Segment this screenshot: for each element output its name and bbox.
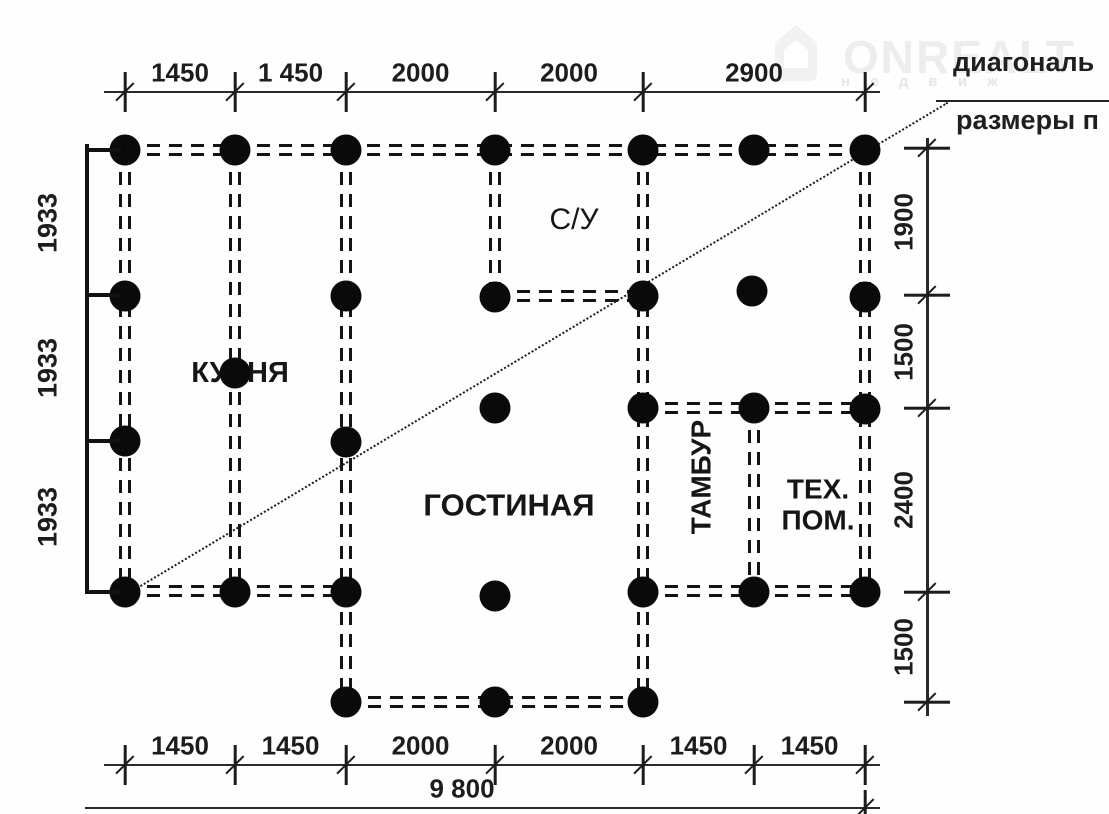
- pile-dot: [628, 687, 659, 718]
- pile-dot: [850, 577, 881, 608]
- pile-dot: [480, 135, 511, 166]
- dimension-label: 1933: [33, 486, 64, 546]
- wall-segment: [748, 408, 760, 591]
- wall-segment: [859, 150, 871, 591]
- dimension-label: 2900: [725, 58, 783, 89]
- dimension-tick: [85, 590, 121, 594]
- dimension-label: 1500: [889, 618, 920, 676]
- pile-dot: [850, 135, 881, 166]
- foundation-plan-drawing: ONREALT н е д в и ж диагональ размеры п …: [0, 0, 1109, 814]
- dimension-line-right: [926, 138, 929, 716]
- dimension-label: 1450: [151, 731, 209, 762]
- pile-dot: [739, 135, 770, 166]
- pile-dot: [628, 281, 659, 312]
- pile-dot: [331, 687, 362, 718]
- annotation-sizes-label: размеры п: [956, 105, 1099, 136]
- annotation-diagonal-label: диагональ: [953, 47, 1094, 78]
- room-label-living-room: ГОСТИНАЯ: [423, 489, 594, 524]
- dimension-label: 1900: [889, 193, 920, 251]
- pile-dot: [480, 282, 511, 313]
- dimension-label: 1933: [33, 192, 64, 252]
- dimension-label: 2400: [889, 471, 920, 529]
- room-label-vestibule: ТАМБУР: [685, 420, 716, 534]
- dimension-tick: [85, 439, 121, 443]
- pile-dot: [220, 577, 251, 608]
- dimension-label: 1500: [889, 323, 920, 381]
- plan-layer: КУХНЯС/УГОСТИНАЯТАМБУРТЕХ. ПОМ.14501 450…: [0, 0, 1109, 814]
- dimension-line-left: [85, 144, 89, 594]
- pile-dot: [331, 135, 362, 166]
- pile-dot: [331, 577, 362, 608]
- room-label-tech-room: ТЕХ. ПОМ.: [781, 474, 854, 537]
- wall-segment: [489, 150, 501, 296]
- pile-dot: [850, 282, 881, 313]
- pile-dot: [480, 581, 511, 612]
- dimension-label: 1450: [781, 731, 839, 762]
- dimension-label: 2000: [392, 731, 450, 762]
- pile-dot: [739, 577, 770, 608]
- wall-segment: [637, 150, 649, 702]
- annotation-leader-line: [936, 100, 1109, 102]
- pile-dot: [850, 394, 881, 425]
- dimension-line-total: [85, 807, 880, 809]
- dimension-label: 1450: [262, 731, 320, 762]
- dimension-label: 2000: [540, 731, 598, 762]
- pile-dot: [628, 577, 659, 608]
- pile-dot: [480, 393, 511, 424]
- dimension-label: 1450: [670, 731, 728, 762]
- dimension-label: 1450: [151, 58, 209, 89]
- pile-dot: [737, 276, 768, 307]
- pile-dot: [331, 427, 362, 458]
- wall-segment: [119, 150, 131, 591]
- dimension-tick: [85, 293, 121, 297]
- room-label-bathroom: С/У: [549, 203, 598, 237]
- pile-dot: [220, 358, 251, 389]
- pile-dot: [220, 135, 251, 166]
- dimension-total-label: 9 800: [429, 774, 494, 805]
- pile-dot: [480, 687, 511, 718]
- pile-dot: [739, 393, 770, 424]
- dimension-label: 2000: [540, 58, 598, 89]
- dimension-label: 1 450: [258, 58, 323, 89]
- pile-dot: [331, 281, 362, 312]
- dimension-label: 1933: [33, 338, 64, 398]
- dimension-label: 2000: [392, 58, 450, 89]
- pile-dot: [628, 135, 659, 166]
- dimension-tick: [85, 148, 121, 152]
- pile-dot: [628, 393, 659, 424]
